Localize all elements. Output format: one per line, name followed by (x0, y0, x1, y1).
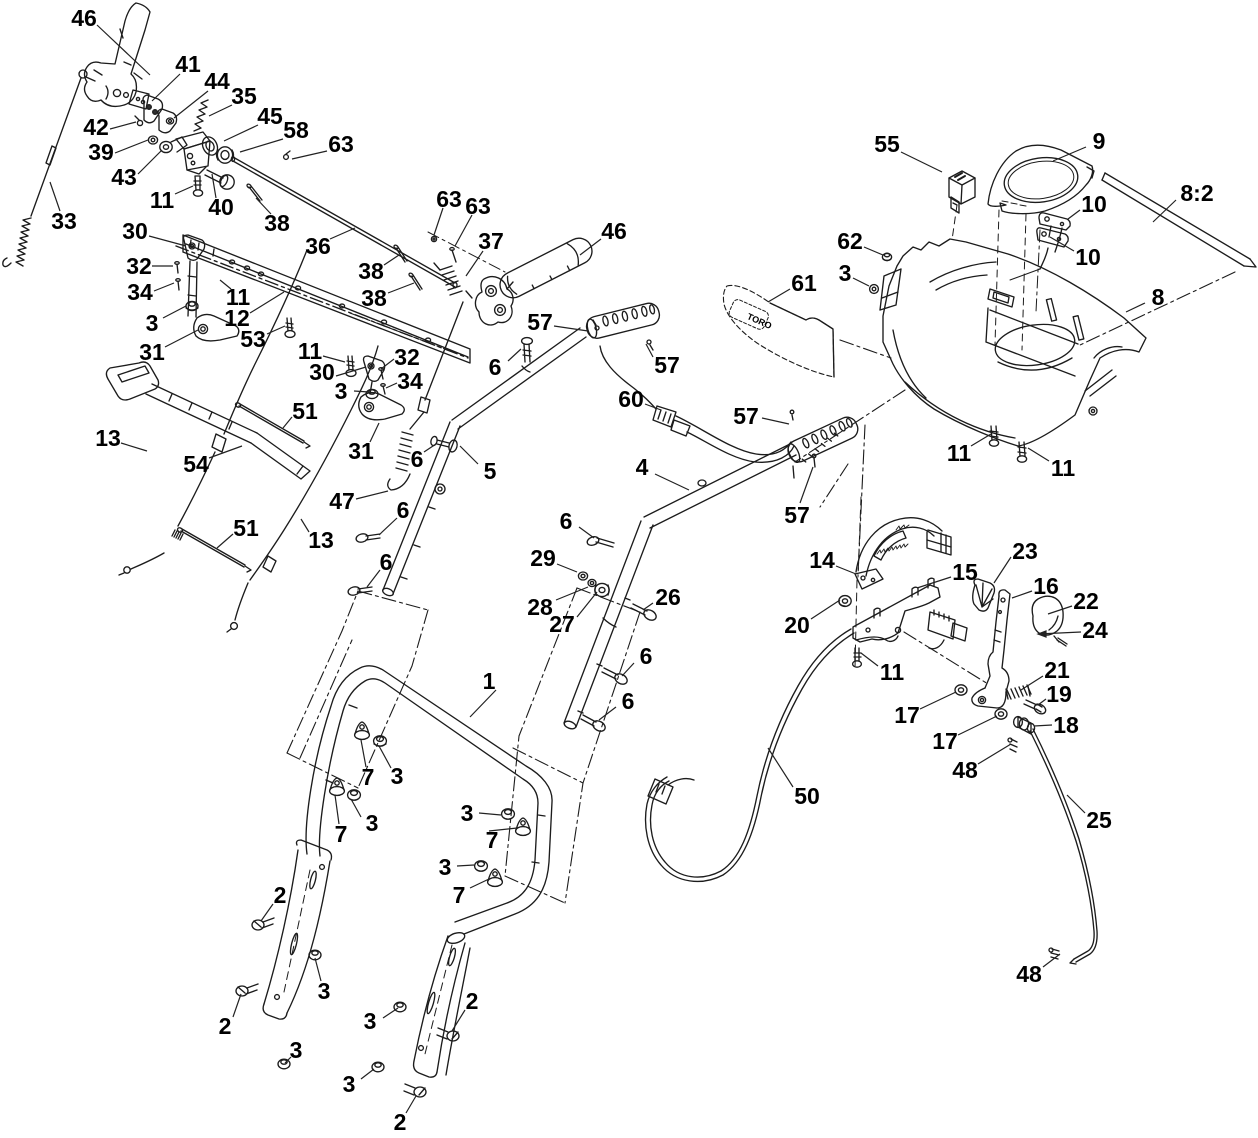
svg-text:31: 31 (139, 339, 165, 365)
svg-text:17: 17 (932, 728, 958, 754)
svg-text:51: 51 (233, 515, 259, 541)
svg-text:27: 27 (549, 611, 575, 637)
svg-text:2: 2 (466, 988, 479, 1014)
svg-text:20: 20 (784, 612, 810, 638)
svg-text:47: 47 (329, 488, 355, 514)
svg-text:3: 3 (318, 978, 331, 1004)
svg-text:2: 2 (219, 1013, 232, 1039)
svg-text:4: 4 (636, 454, 649, 480)
svg-text:43: 43 (111, 164, 137, 190)
svg-text:32: 32 (126, 253, 152, 279)
svg-text:6: 6 (380, 549, 393, 575)
svg-text:16: 16 (1033, 573, 1059, 599)
svg-text:15: 15 (952, 559, 978, 585)
svg-text:61: 61 (791, 270, 817, 296)
svg-text:21: 21 (1044, 657, 1070, 683)
svg-text:45: 45 (257, 103, 283, 129)
svg-text:6: 6 (489, 354, 502, 380)
svg-text:58: 58 (283, 117, 309, 143)
svg-text:55: 55 (874, 131, 900, 157)
svg-text:7: 7 (335, 821, 348, 847)
svg-text:62: 62 (837, 228, 863, 254)
svg-text:3: 3 (366, 810, 379, 836)
svg-text:30: 30 (309, 359, 335, 385)
svg-text:3: 3 (839, 260, 852, 286)
svg-text:5: 5 (484, 458, 497, 484)
svg-text:1: 1 (483, 668, 496, 694)
svg-text:3: 3 (335, 378, 348, 404)
svg-text:3: 3 (146, 310, 159, 336)
svg-text:2: 2 (274, 882, 287, 908)
svg-text:40: 40 (208, 194, 234, 220)
svg-text:54: 54 (183, 451, 209, 477)
svg-text:63: 63 (465, 193, 491, 219)
svg-text:57: 57 (733, 403, 759, 429)
svg-text:39: 39 (88, 139, 114, 165)
svg-text:57: 57 (654, 352, 680, 378)
svg-text:35: 35 (231, 83, 257, 109)
svg-text:34: 34 (397, 368, 423, 394)
svg-text:7: 7 (453, 882, 466, 908)
svg-text:50: 50 (794, 783, 820, 809)
svg-text:11: 11 (880, 659, 905, 685)
svg-text:3: 3 (364, 1008, 377, 1034)
svg-text:33: 33 (51, 208, 77, 234)
svg-text:6: 6 (560, 508, 573, 534)
svg-text:53: 53 (240, 326, 266, 352)
svg-text:51: 51 (292, 398, 318, 424)
svg-text:3: 3 (290, 1037, 303, 1063)
svg-text:24: 24 (1082, 617, 1108, 643)
svg-text:3: 3 (439, 854, 452, 880)
svg-text:3: 3 (391, 763, 404, 789)
svg-text:13: 13 (95, 425, 121, 451)
svg-text:36: 36 (305, 233, 331, 259)
svg-text:8:2: 8:2 (1180, 180, 1213, 206)
svg-text:18: 18 (1053, 712, 1079, 738)
svg-text:63: 63 (436, 186, 462, 212)
svg-text:38: 38 (358, 258, 384, 284)
svg-text:38: 38 (361, 285, 387, 311)
svg-text:42: 42 (83, 114, 109, 140)
svg-text:13: 13 (308, 527, 334, 553)
svg-text:31: 31 (348, 438, 374, 464)
svg-text:37: 37 (478, 228, 504, 254)
svg-text:38: 38 (264, 210, 290, 236)
svg-text:23: 23 (1012, 538, 1038, 564)
svg-text:11: 11 (150, 187, 175, 213)
svg-text:29: 29 (530, 545, 556, 571)
svg-text:41: 41 (175, 51, 201, 77)
svg-text:8: 8 (1152, 284, 1165, 310)
svg-text:9: 9 (1093, 128, 1106, 154)
svg-text:6: 6 (622, 688, 635, 714)
svg-text:60: 60 (618, 386, 644, 412)
svg-text:48: 48 (1016, 961, 1042, 987)
svg-text:25: 25 (1086, 807, 1112, 833)
svg-text:34: 34 (127, 279, 153, 305)
svg-text:44: 44 (204, 68, 230, 94)
svg-text:14: 14 (809, 547, 835, 573)
svg-text:10: 10 (1081, 191, 1107, 217)
svg-text:3: 3 (343, 1071, 356, 1097)
svg-text:46: 46 (71, 5, 97, 31)
svg-text:63: 63 (328, 131, 354, 157)
svg-text:7: 7 (486, 827, 499, 853)
svg-text:26: 26 (655, 584, 681, 610)
svg-text:32: 32 (394, 344, 420, 370)
svg-text:48: 48 (952, 757, 978, 783)
svg-text:46: 46 (601, 218, 627, 244)
svg-text:22: 22 (1073, 588, 1099, 614)
svg-text:3: 3 (461, 800, 474, 826)
svg-text:17: 17 (894, 702, 920, 728)
svg-text:2: 2 (394, 1109, 407, 1135)
svg-text:6: 6 (397, 497, 410, 523)
svg-text:6: 6 (640, 643, 653, 669)
svg-text:11: 11 (1051, 455, 1076, 481)
svg-text:11: 11 (947, 440, 972, 466)
svg-text:30: 30 (122, 218, 148, 244)
svg-text:19: 19 (1046, 681, 1072, 707)
svg-text:6: 6 (411, 446, 424, 472)
svg-text:10: 10 (1075, 244, 1101, 270)
svg-text:57: 57 (527, 309, 553, 335)
svg-text:7: 7 (362, 764, 375, 790)
svg-text:57: 57 (784, 502, 810, 528)
